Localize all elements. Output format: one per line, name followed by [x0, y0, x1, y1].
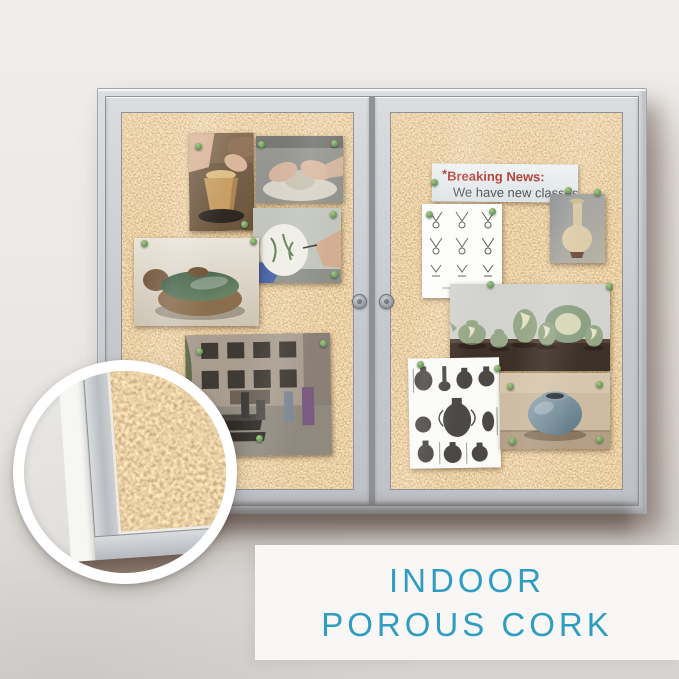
photo-hands-on-wheel-art: [256, 136, 343, 203]
push-pin-icon: [258, 141, 265, 148]
push-pin-icon: [330, 211, 337, 218]
caption-line2: POROUS CORK: [321, 603, 613, 647]
push-pin-icon: [196, 348, 203, 355]
photo-blue-pot: [500, 373, 610, 449]
sketch-sheet-amphorae: [408, 357, 501, 469]
push-pin-icon: [141, 240, 148, 247]
push-pin-icon: [606, 283, 613, 290]
photo-cream-vase-art: [550, 194, 605, 263]
photo-blue-pot-art: [500, 373, 610, 449]
caption-line1: INDOOR: [389, 559, 545, 603]
photo-lidded-dish: [134, 238, 259, 326]
magnifier-content: [24, 371, 226, 573]
left-door-lock-icon: [352, 294, 367, 309]
photo-vase-painting-art: [253, 208, 341, 283]
photo-hands-on-wheel: [256, 136, 343, 203]
push-pin-icon: [320, 340, 327, 347]
push-pin-icon: [331, 140, 338, 147]
push-pin-icon: [250, 238, 257, 245]
news-card-title: *Breaking News:: [442, 166, 570, 185]
right-door-lock-icon: [379, 294, 394, 309]
photo-cream-vase: [550, 194, 605, 263]
caption-panel: INDOOR POROUS CORK: [255, 545, 679, 660]
magnified-cork-texture: [104, 371, 226, 535]
cork-detail-magnifier: [13, 360, 237, 584]
photo-lidded-dish-art: [134, 238, 259, 326]
photo-vase-painting: [253, 208, 341, 283]
push-pin-icon: [489, 208, 496, 215]
push-pin-icon: [256, 435, 263, 442]
push-pin-icon: [431, 179, 438, 186]
sketch-sheet-amphorae-art: [408, 357, 501, 469]
push-pin-icon: [507, 383, 514, 390]
push-pin-icon: [195, 143, 202, 150]
push-pin-icon: [596, 381, 603, 388]
push-pin-icon: [241, 221, 248, 228]
right-door: *Breaking News: We have new classes: [374, 96, 639, 506]
push-pin-icon: [426, 211, 433, 218]
right-door-cork-panel: *Breaking News: We have new classes: [390, 112, 623, 490]
push-pin-icon: [417, 361, 424, 368]
push-pin-icon: [331, 271, 338, 278]
push-pin-icon: [565, 187, 572, 194]
magnifier-rotated-group: [24, 371, 226, 573]
push-pin-icon: [596, 436, 603, 443]
push-pin-icon: [494, 365, 501, 372]
product-scene: *Breaking News: We have new classes: [0, 0, 679, 679]
push-pin-icon: [594, 189, 601, 196]
push-pin-icon: [509, 438, 516, 445]
push-pin-icon: [487, 281, 494, 288]
